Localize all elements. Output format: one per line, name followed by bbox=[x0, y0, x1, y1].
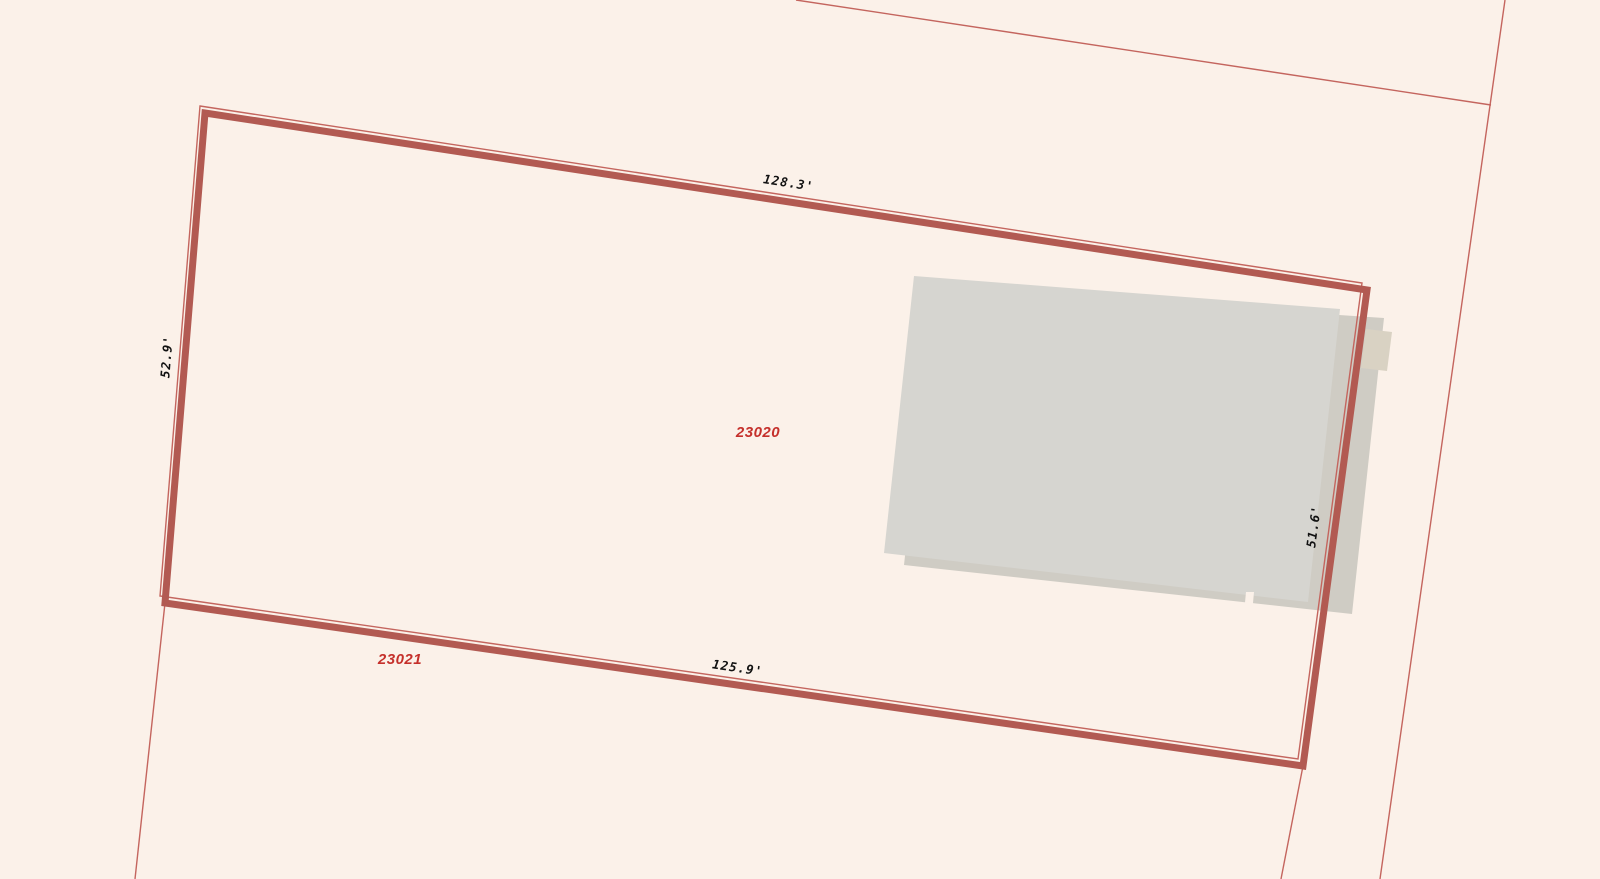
parcel-id-label-23020[interactable]: 23020 bbox=[735, 424, 780, 441]
map-canvas[interactable]: 128.3' 52.9' 125.9' 51.6' 23020 23021 bbox=[0, 0, 1600, 879]
parcel-map-view[interactable]: 128.3' 52.9' 125.9' 51.6' 23020 23021 bbox=[0, 0, 1600, 879]
parcel-id-label-23021[interactable]: 23021 bbox=[377, 651, 422, 668]
building-annex bbox=[1361, 329, 1392, 371]
building-footprint[interactable] bbox=[884, 276, 1340, 602]
